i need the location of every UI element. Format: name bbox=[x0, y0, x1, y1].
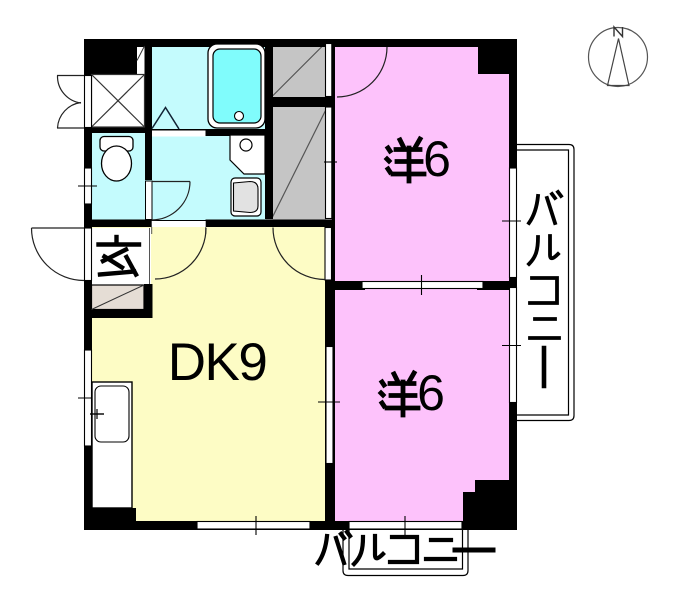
svg-text:6: 6 bbox=[417, 365, 445, 421]
svg-text:DK9: DK9 bbox=[168, 333, 267, 392]
svg-text:6: 6 bbox=[423, 131, 451, 187]
